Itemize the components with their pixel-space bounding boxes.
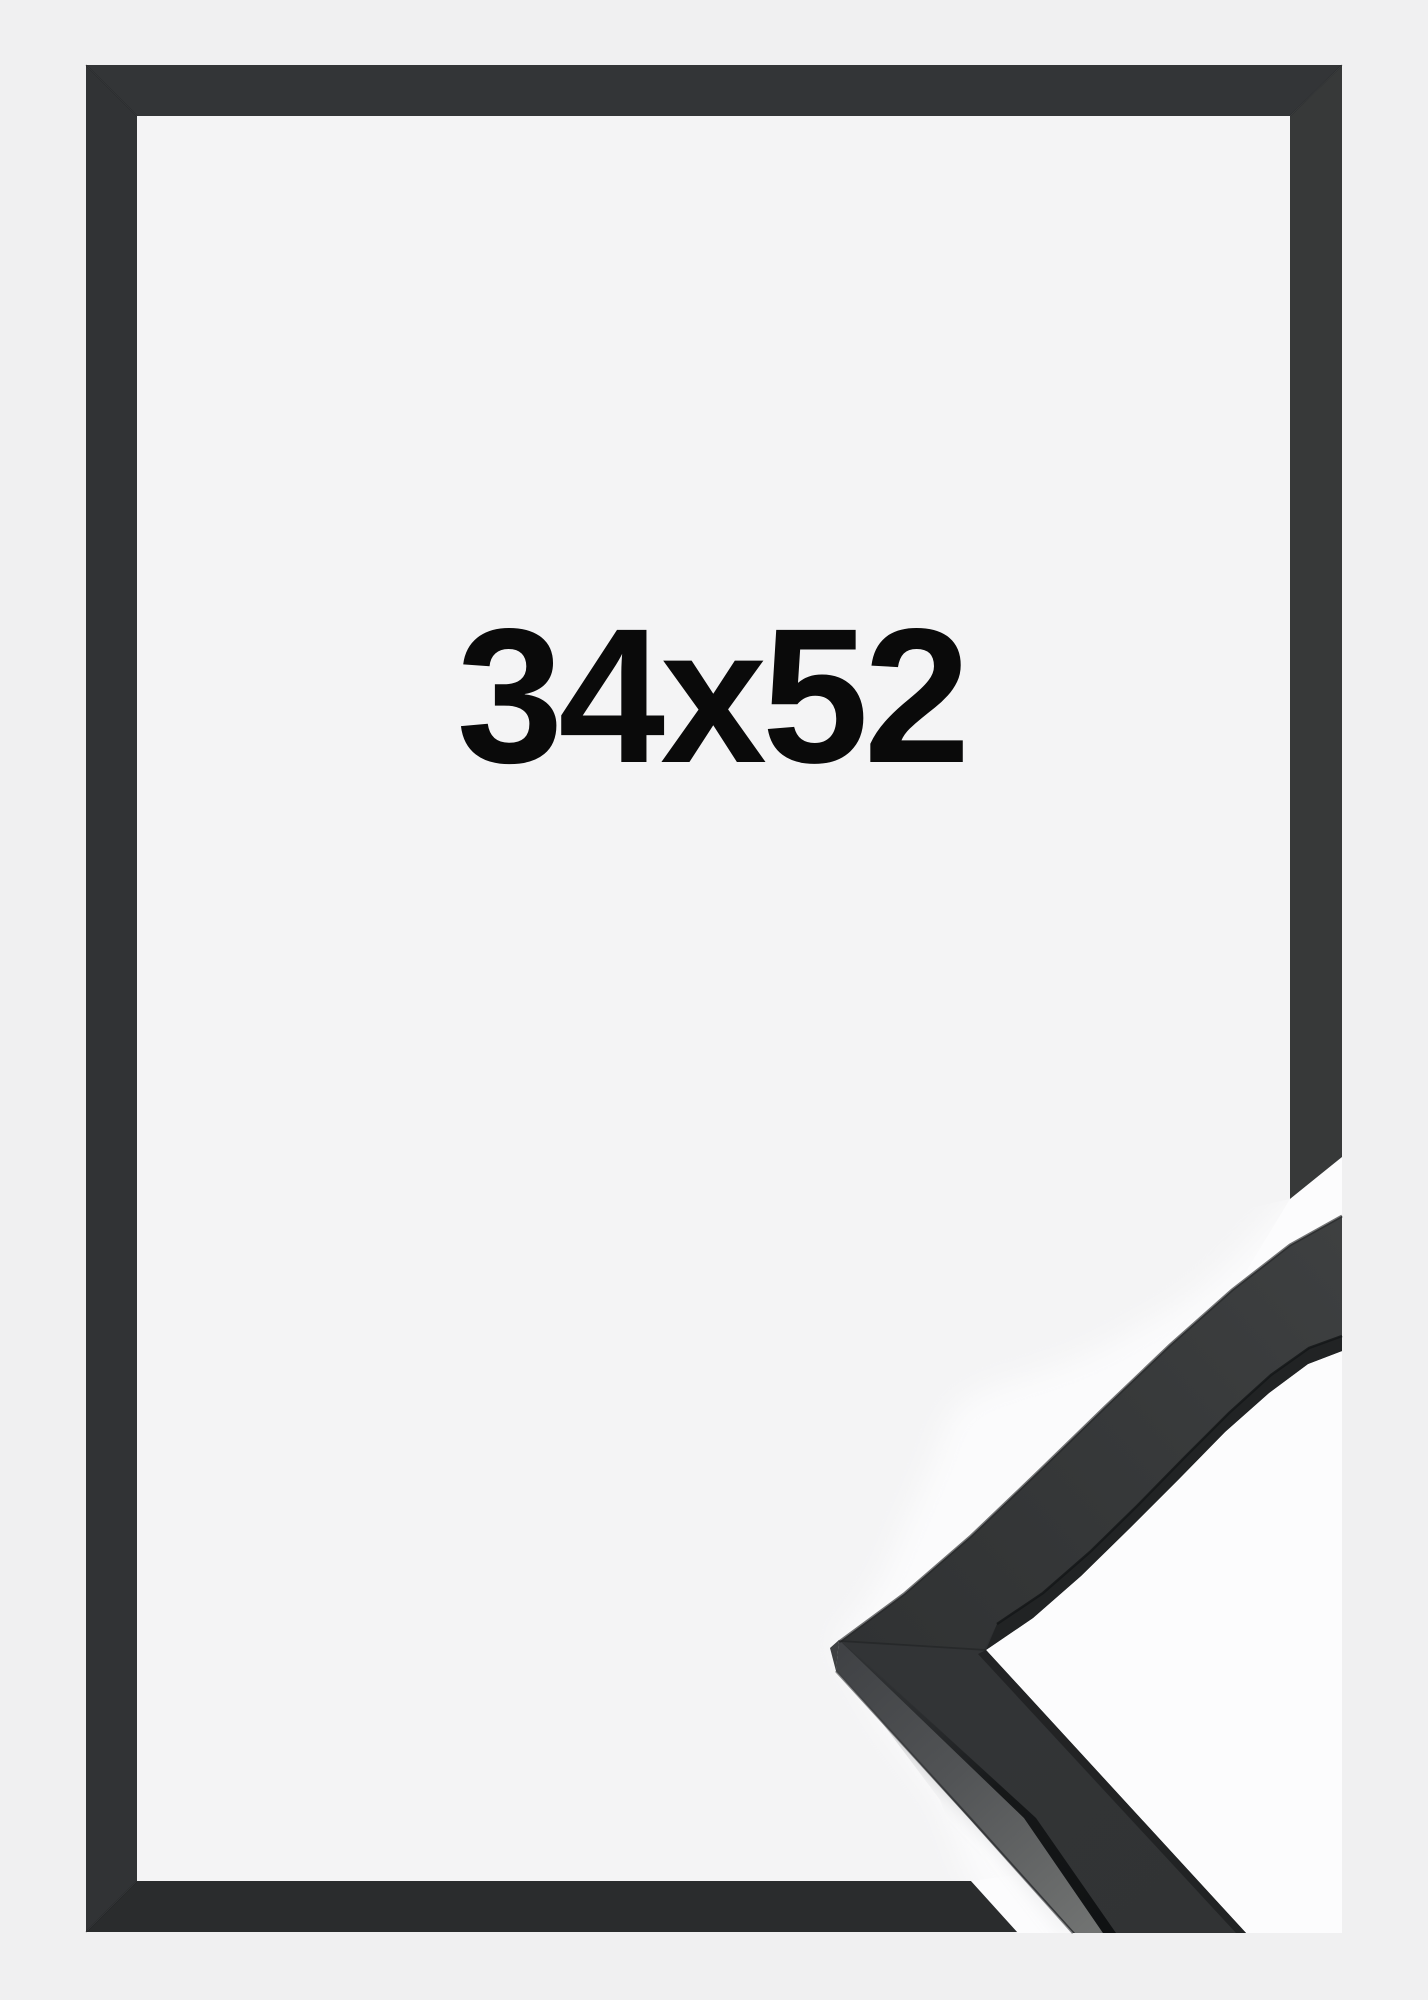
svg-text:34x52: 34x52 — [457, 588, 966, 803]
